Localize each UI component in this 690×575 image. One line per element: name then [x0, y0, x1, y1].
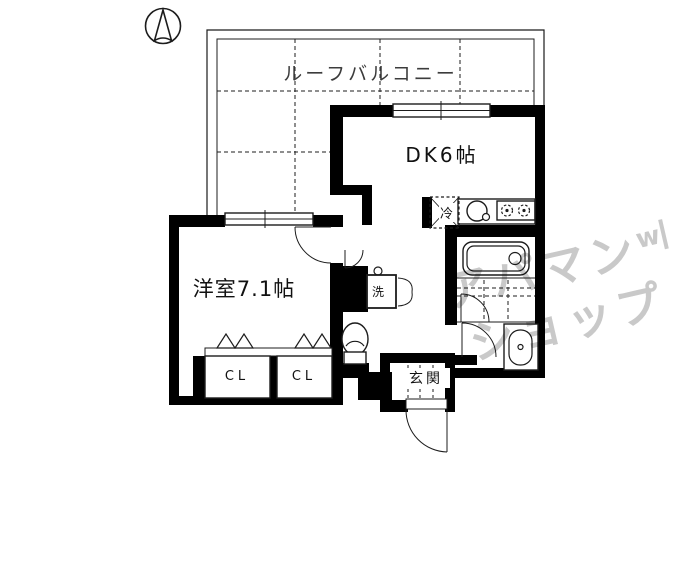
- window-bedroom: [225, 210, 313, 228]
- refrigerator-label: 冷: [439, 203, 454, 222]
- entrance-label: 玄関: [402, 368, 450, 388]
- floor-plan-page: ルーフバルコニー DK6帖 洋室7.1帖 冷 洗 玄関 CL CL アパマンw …: [0, 0, 690, 575]
- closet-doors: [205, 334, 332, 398]
- roof-balcony-label: ルーフバルコニー: [268, 59, 473, 86]
- washer-label: 洗: [372, 283, 384, 300]
- bifold-door-icon: [398, 278, 412, 306]
- dk-room-label: DK6帖: [383, 139, 501, 168]
- closet2-label: CL: [281, 369, 327, 384]
- floor-plan-drawing: [0, 0, 690, 575]
- bathroom-floor: [457, 278, 535, 322]
- roof-balcony-outline: [207, 30, 544, 215]
- washbasin-icon: [504, 324, 538, 370]
- toilet-icon: [342, 323, 368, 364]
- compass-north-icon: [146, 9, 181, 44]
- bedroom-label: 洋室7.1帖: [173, 273, 315, 303]
- window-dk: [393, 101, 490, 120]
- closet1-label: CL: [213, 369, 261, 384]
- bathtub-icon: [463, 242, 529, 275]
